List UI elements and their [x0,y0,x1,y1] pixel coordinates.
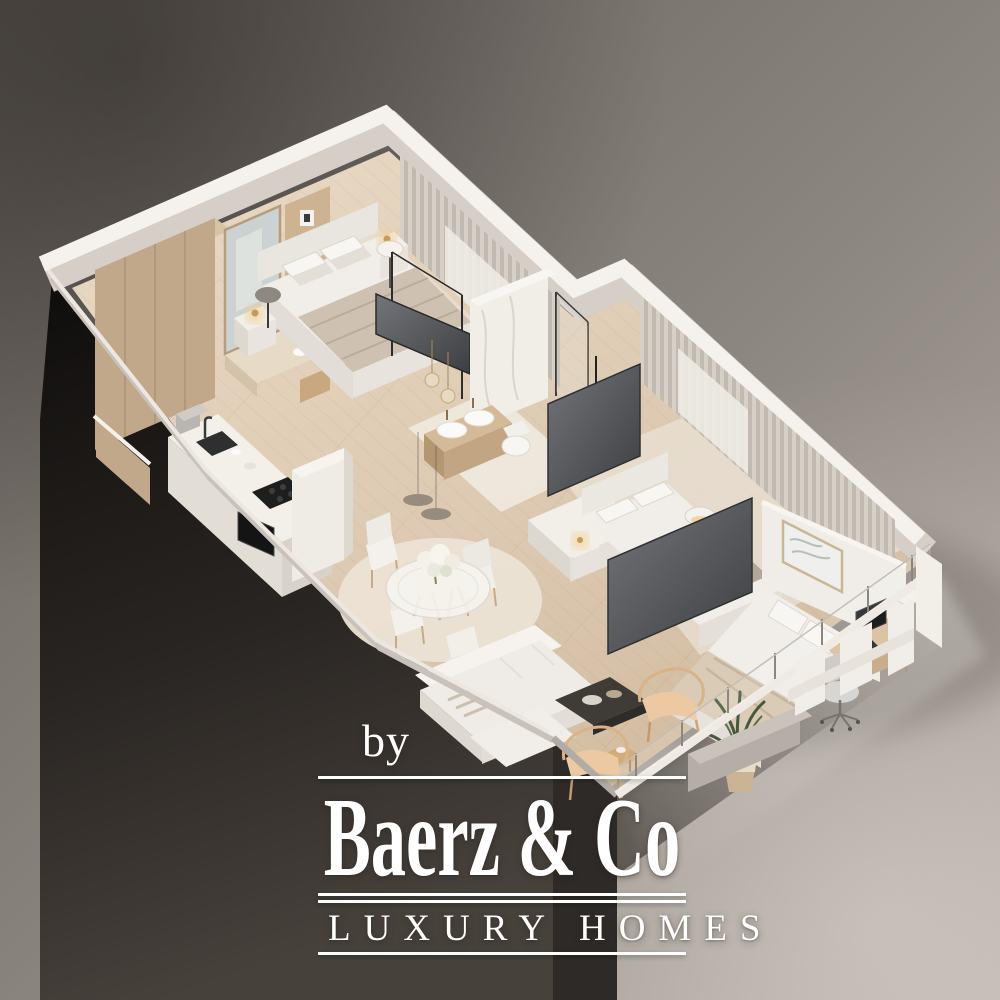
sink [437,422,467,438]
watermark-rule-double-1 [318,893,686,896]
real-estate-render: by Baerz & Co LUXURY HOMES [0,0,1000,1000]
watermark-prefix: by [362,718,410,764]
right-end-wall [916,546,942,648]
watermark-tagline: LUXURY HOMES [318,910,686,947]
watermark-brand: Baerz & Co [324,782,681,894]
watermark: by Baerz & Co LUXURY HOMES [318,716,686,960]
watermark-rule-bottom [318,952,686,955]
sink [464,410,494,426]
watermark-rule-double-2 [318,900,686,903]
